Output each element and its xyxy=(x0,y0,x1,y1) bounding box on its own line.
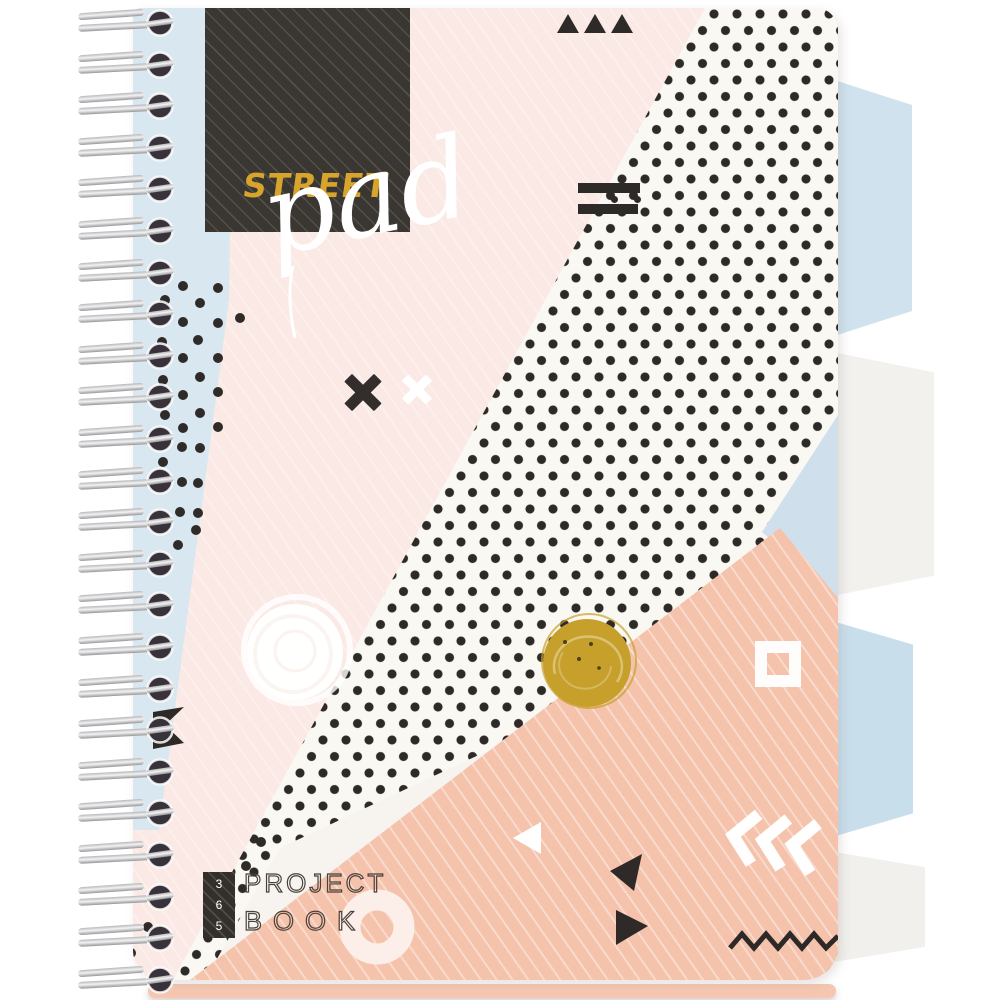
badge-digit: 5 xyxy=(203,916,235,937)
dot-icon xyxy=(611,196,618,203)
spiral-coil xyxy=(76,503,188,545)
white-curve-line xyxy=(285,263,305,343)
index-tab-white-1 xyxy=(822,350,934,598)
zigzag-icon xyxy=(728,922,838,960)
spiral-coil xyxy=(76,586,188,628)
dot-icon xyxy=(213,353,223,363)
cross-icon-black xyxy=(342,368,384,410)
spiral-coil xyxy=(76,794,188,836)
dot-icon xyxy=(191,525,201,535)
title-project: PROJECT xyxy=(244,868,386,898)
dot-icon xyxy=(193,335,203,345)
dot-icon xyxy=(213,283,223,293)
spiral-coil xyxy=(76,87,188,129)
spiral-coil xyxy=(76,212,188,254)
title-book: BOOK xyxy=(244,906,366,936)
equals-bar-icon xyxy=(578,204,638,214)
spiral-coil xyxy=(76,545,188,587)
product-title: PROJECT BOOK xyxy=(238,860,428,950)
spiral-coil xyxy=(76,753,188,795)
dot-icon xyxy=(634,196,641,203)
black-triangle-icon-2 xyxy=(612,905,657,950)
spiral-coil xyxy=(76,420,188,462)
spiral-coil xyxy=(76,961,188,1000)
dot-icon xyxy=(195,298,205,308)
spiral-coil xyxy=(76,4,188,46)
notebook-cover: STREET pad xyxy=(133,8,838,980)
dot-icon xyxy=(213,422,223,432)
chevrons-icon xyxy=(720,810,838,882)
spiral-coil xyxy=(76,711,188,753)
dot-icon xyxy=(241,861,251,871)
page-stack-edge xyxy=(148,984,836,998)
dot-icon xyxy=(256,837,266,847)
dot-icon xyxy=(195,408,205,418)
spiral-coil xyxy=(76,670,188,712)
spiral-coil xyxy=(76,295,188,337)
spiral-coil xyxy=(76,628,188,670)
gold-scribble-circle xyxy=(535,612,640,717)
spiral-coil xyxy=(76,919,188,961)
white-triangle-icon xyxy=(513,822,541,854)
spiral-coil xyxy=(76,170,188,212)
dot-icon xyxy=(195,372,205,382)
spiral-coil xyxy=(76,878,188,920)
dot-icon xyxy=(193,508,203,518)
dot-icon xyxy=(213,318,223,328)
badge-digit: 6 xyxy=(203,895,235,916)
black-triangle-icon-1 xyxy=(605,850,650,895)
product-photo: STREET pad xyxy=(0,0,1000,1000)
dot-icon xyxy=(213,387,223,397)
dot-icon xyxy=(235,313,245,323)
spiral-coil xyxy=(76,129,188,171)
spiral-coil xyxy=(76,254,188,296)
spiral-coil xyxy=(76,378,188,420)
dot-icon xyxy=(195,443,205,453)
triangle-row-icon xyxy=(557,14,633,33)
spiral-coil xyxy=(76,462,188,504)
spiral-coil xyxy=(76,46,188,88)
spiral-coil xyxy=(76,836,188,878)
cross-icon-white xyxy=(400,370,434,404)
equals-bar-icon xyxy=(578,183,640,193)
dot-icon xyxy=(193,478,203,488)
badge-digit: 3 xyxy=(203,874,235,895)
spiral-coil xyxy=(76,337,188,379)
white-scribble-circle xyxy=(235,590,360,715)
badge-365: 3 6 5 xyxy=(203,872,235,938)
square-outline-icon xyxy=(755,641,801,687)
